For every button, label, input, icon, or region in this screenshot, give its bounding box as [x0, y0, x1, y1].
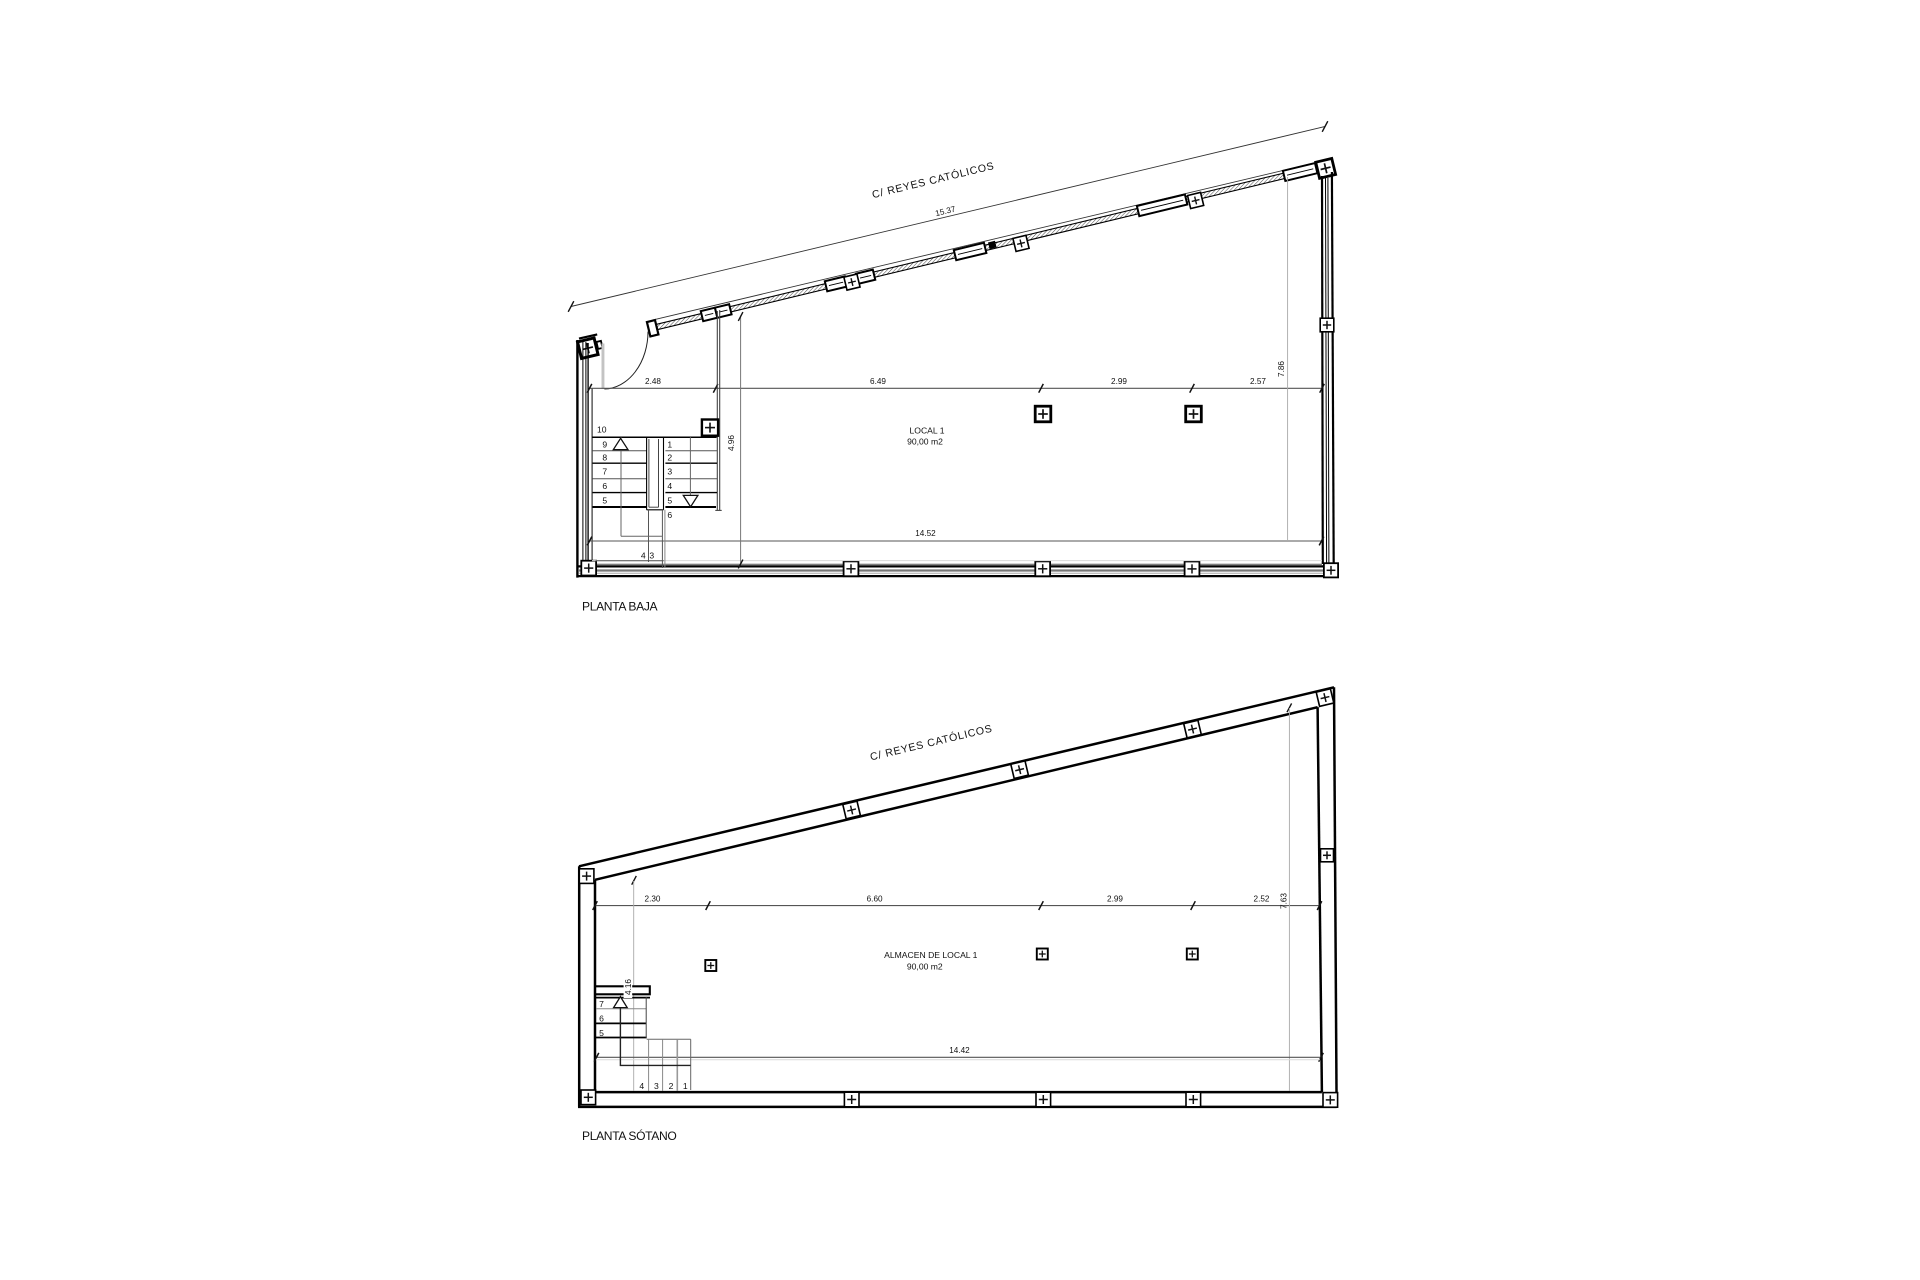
svg-text:5: 5 — [599, 1028, 604, 1038]
svg-text:4: 4 — [667, 481, 672, 491]
svg-text:2.99: 2.99 — [1107, 895, 1123, 904]
svg-text:2: 2 — [667, 453, 672, 463]
svg-text:2.48: 2.48 — [645, 377, 661, 386]
svg-text:6.60: 6.60 — [867, 895, 883, 904]
svg-text:1: 1 — [683, 1081, 688, 1091]
svg-text:4.96: 4.96 — [727, 435, 736, 451]
svg-text:14.52: 14.52 — [915, 529, 936, 538]
svg-text:7: 7 — [602, 467, 607, 477]
svg-text:90,00 m2: 90,00 m2 — [907, 436, 943, 446]
svg-text:7: 7 — [599, 999, 604, 1009]
svg-text:4: 4 — [641, 550, 646, 560]
svg-text:PLANTA SÓTANO: PLANTA SÓTANO — [582, 1128, 676, 1143]
svg-text:5: 5 — [667, 496, 672, 506]
svg-text:3: 3 — [667, 467, 672, 477]
svg-text:8: 8 — [602, 453, 607, 463]
svg-text:4.16: 4.16 — [624, 979, 633, 995]
svg-text:ALMACEN DE LOCAL 1: ALMACEN DE LOCAL 1 — [884, 950, 978, 960]
svg-text:2.99: 2.99 — [1111, 377, 1127, 386]
svg-text:6: 6 — [602, 481, 607, 491]
svg-text:2: 2 — [669, 1081, 674, 1091]
svg-text:1: 1 — [667, 440, 672, 450]
svg-text:7.63: 7.63 — [1280, 893, 1289, 909]
svg-text:3: 3 — [649, 550, 654, 560]
svg-text:9: 9 — [602, 440, 607, 450]
svg-text:LOCAL 1: LOCAL 1 — [909, 426, 944, 436]
svg-text:5: 5 — [602, 496, 607, 506]
svg-text:2.30: 2.30 — [645, 895, 661, 904]
svg-text:2.52: 2.52 — [1254, 895, 1270, 904]
svg-text:10: 10 — [597, 425, 607, 435]
svg-text:PLANTA BAJA: PLANTA BAJA — [582, 599, 659, 613]
svg-text:6: 6 — [599, 1014, 604, 1024]
svg-text:90,00 m2: 90,00 m2 — [907, 962, 943, 972]
svg-text:6.49: 6.49 — [870, 377, 886, 386]
svg-text:2.57: 2.57 — [1250, 377, 1266, 386]
svg-text:7.86: 7.86 — [1277, 361, 1286, 377]
svg-text:4: 4 — [639, 1081, 644, 1091]
svg-text:3: 3 — [654, 1081, 659, 1091]
svg-text:6: 6 — [667, 510, 672, 520]
svg-text:14.42: 14.42 — [949, 1046, 970, 1055]
